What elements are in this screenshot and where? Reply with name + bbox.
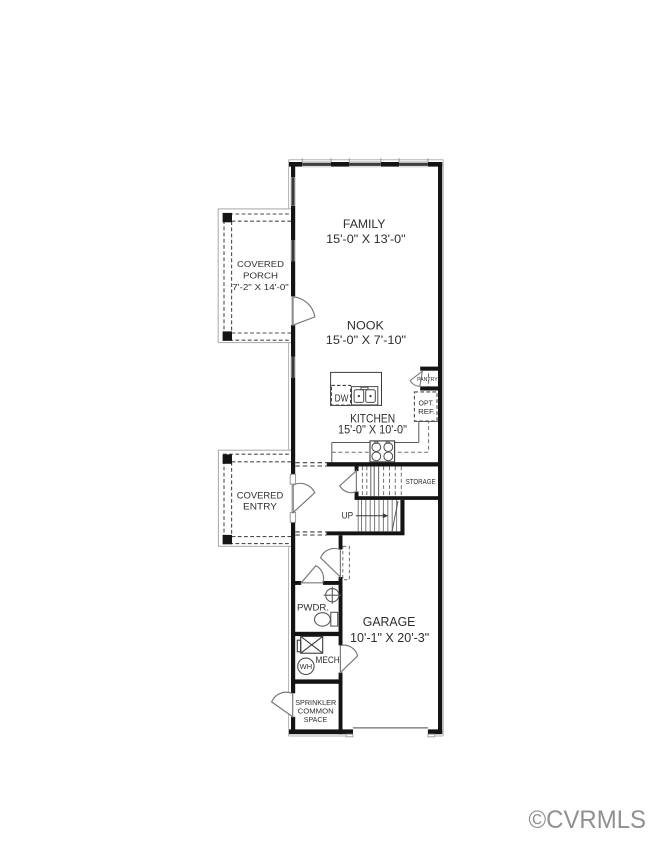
svg-text:ENTRY: ENTRY [243,501,278,512]
svg-text:DW: DW [335,394,349,405]
svg-text:REF.: REF. [418,407,435,416]
svg-text:PWDR.: PWDR. [297,603,329,614]
svg-text:PANTRY: PANTRY [417,377,438,383]
svg-text:15'-0" X 13'-0": 15'-0" X 13'-0" [326,232,406,246]
svg-text:COVERED: COVERED [237,260,284,269]
svg-text:UP: UP [342,510,354,520]
svg-text:COVERED: COVERED [237,490,284,501]
svg-text:PORCH: PORCH [243,271,278,280]
svg-text:15'-0" X 10'-0": 15'-0" X 10'-0" [338,423,407,437]
svg-text:GARAGE: GARAGE [363,615,416,629]
svg-text:10'-1" X 20'-3": 10'-1" X 20'-3" [350,631,429,645]
svg-text:STORAGE: STORAGE [406,477,436,486]
svg-text:NOOK: NOOK [347,318,385,332]
svg-text:FAMILY: FAMILY [343,217,386,231]
svg-text:WH: WH [300,664,313,671]
svg-text:MECH: MECH [316,655,340,666]
svg-text:©CVRMLS: ©CVRMLS [529,806,647,834]
svg-text:15'-0" X 7'-10": 15'-0" X 7'-10" [326,333,406,347]
svg-text:7'-2" X 14'-0": 7'-2" X 14'-0" [232,283,289,292]
svg-text:SPACE: SPACE [304,715,328,724]
